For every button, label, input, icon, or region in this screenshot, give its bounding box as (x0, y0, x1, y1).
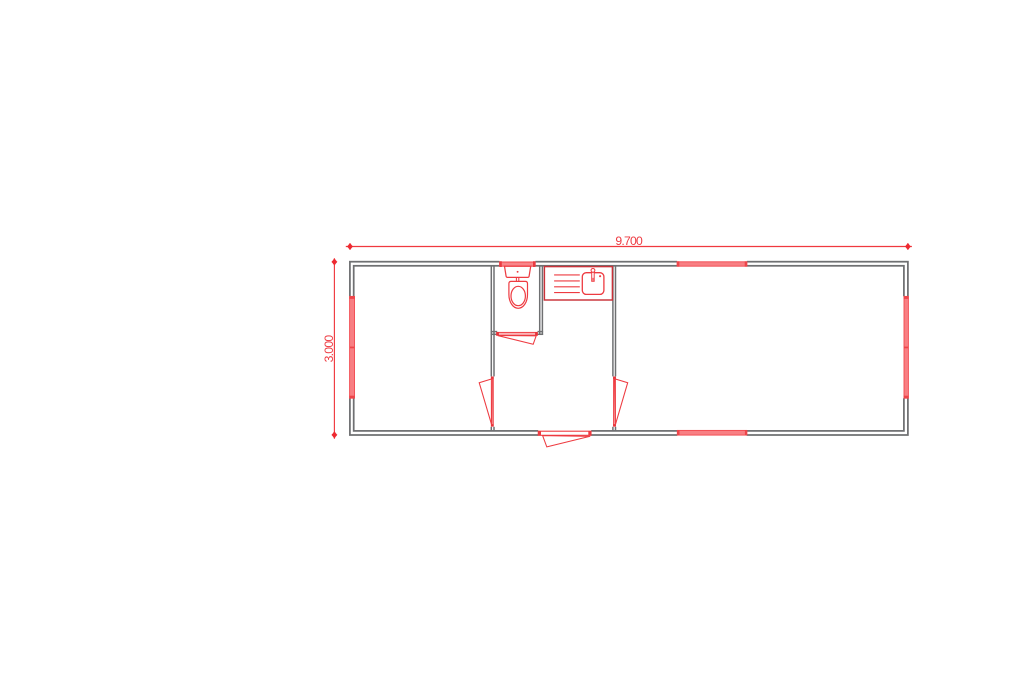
svg-text:9.700: 9.700 (615, 234, 643, 248)
svg-text:3.000: 3.000 (322, 335, 336, 363)
